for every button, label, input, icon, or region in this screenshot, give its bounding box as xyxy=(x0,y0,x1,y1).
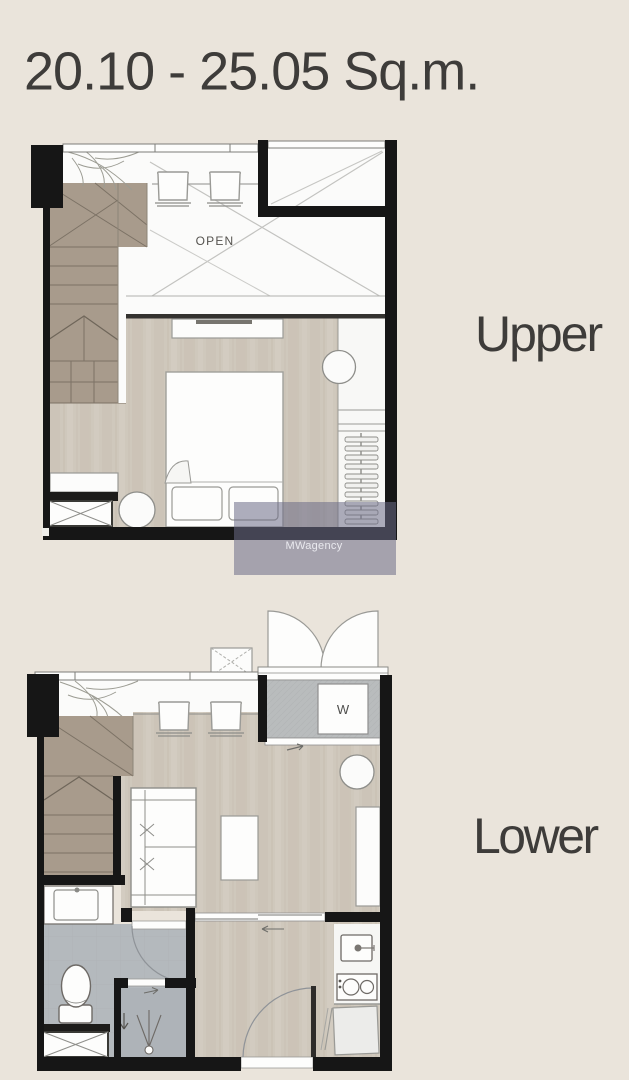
svg-text:20.10 - 25.05 Sq.m.: 20.10 - 25.05 Sq.m. xyxy=(24,42,479,102)
svg-text:OPEN: OPEN xyxy=(196,234,235,248)
svg-text:W: W xyxy=(337,702,350,717)
svg-text:MWagency: MWagency xyxy=(285,540,342,552)
svg-text:Lower: Lower xyxy=(473,808,599,864)
svg-text:Upper: Upper xyxy=(475,306,603,362)
